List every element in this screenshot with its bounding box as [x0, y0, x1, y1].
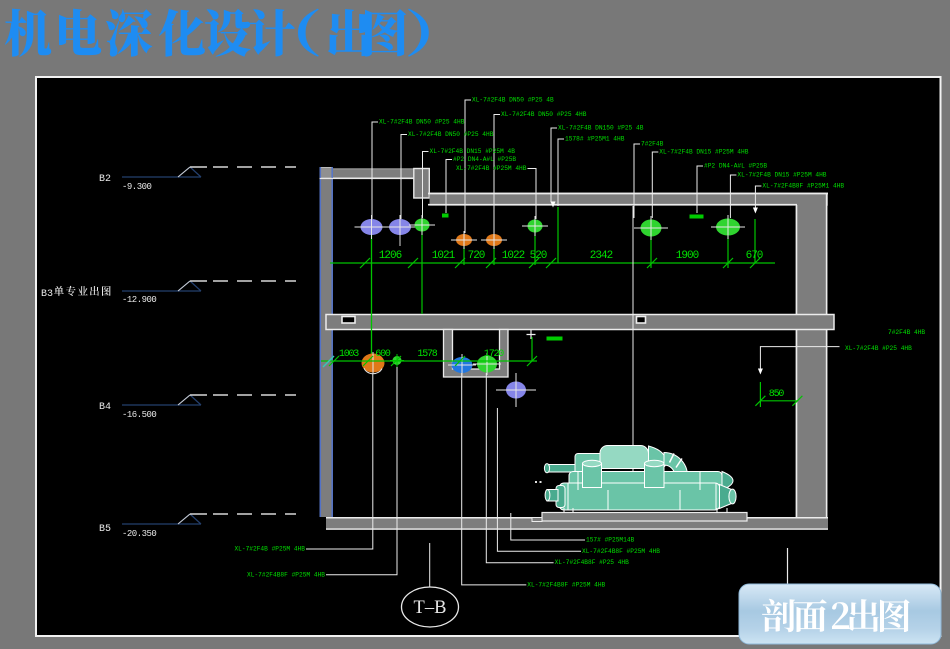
- svg-text:7#2F4B 4HB: 7#2F4B 4HB: [888, 329, 925, 336]
- svg-text:XL-7#2F4B DN15 #P25M 4HB: XL-7#2F4B DN15 #P25M 4HB: [659, 149, 748, 156]
- svg-text:1003: 1003: [339, 349, 359, 360]
- svg-text:-9.300: -9.300: [122, 182, 152, 192]
- svg-text:XL-7#2F4B DN50 #P25 4HB: XL-7#2F4B DN50 #P25 4HB: [408, 131, 494, 138]
- svg-text:2342: 2342: [590, 250, 613, 262]
- svg-text:XL-7#2F4B8F #P25M 4HB: XL-7#2F4B8F #P25M 4HB: [527, 581, 605, 588]
- svg-text:520: 520: [530, 250, 547, 262]
- svg-text:XL-7#2F4B DN50 #P25 4HB: XL-7#2F4B DN50 #P25 4HB: [501, 111, 587, 118]
- svg-text:XL-7#2F4B #P25 4HB: XL-7#2F4B #P25 4HB: [845, 345, 912, 352]
- svg-text:-12.900: -12.900: [122, 295, 156, 305]
- svg-text:B5: B5: [99, 524, 111, 535]
- svg-text:157# #P25M14B: 157# #P25M14B: [586, 537, 635, 544]
- svg-text:XL-7#2F4B8F #P25M1 4HB: XL-7#2F4B8F #P25M1 4HB: [762, 183, 844, 190]
- svg-text:B3: B3: [41, 289, 53, 300]
- svg-text:XL-7#2F4B8F #P25M 4HB: XL-7#2F4B8F #P25M 4HB: [247, 571, 325, 578]
- svg-text:1720: 1720: [484, 349, 504, 360]
- svg-text:#P2 DN4-A#L #P25B: #P2 DN4-A#L #P25B: [453, 156, 516, 163]
- svg-text:XL-7#2F4B8F #P25M 4HB: XL-7#2F4B8F #P25M 4HB: [582, 548, 660, 555]
- svg-text:T–B: T–B: [414, 598, 447, 618]
- svg-text:720: 720: [468, 250, 485, 262]
- svg-text:XL-7#2F4B DN50 #P25 4HB: XL-7#2F4B DN50 #P25 4HB: [379, 119, 465, 126]
- svg-text:600: 600: [375, 349, 391, 360]
- svg-text:850: 850: [769, 389, 785, 400]
- svg-text:#P2 DN4-A#L #P25B: #P2 DN4-A#L #P25B: [704, 163, 767, 170]
- svg-text:1022: 1022: [502, 250, 525, 262]
- svg-text:XL-7#2F4B #P25M 4HB: XL-7#2F4B #P25M 4HB: [456, 165, 527, 172]
- svg-text:XL-7#2F4B8F #P25 4HB: XL-7#2F4B8F #P25 4HB: [555, 559, 630, 566]
- svg-text:1578: 1578: [417, 349, 437, 360]
- svg-text:B4: B4: [99, 402, 111, 413]
- svg-text:XL-7#2F4B DN50 #P25 4B: XL-7#2F4B DN50 #P25 4B: [472, 97, 554, 104]
- svg-text:XL-7#2F4B #P25M 4HB: XL-7#2F4B #P25M 4HB: [234, 546, 305, 553]
- svg-text:XL-7#2F4B DN15 #P25M 4B: XL-7#2F4B DN15 #P25M 4B: [430, 148, 516, 155]
- svg-text:XL-7#2F4B DN15 #P25M 4HB: XL-7#2F4B DN15 #P25M 4HB: [737, 172, 826, 179]
- svg-text:-20.350: -20.350: [122, 529, 156, 539]
- svg-text:XL-7#2F4B DN150 #P25 4B: XL-7#2F4B DN150 #P25 4B: [558, 125, 644, 132]
- svg-text:1021: 1021: [432, 250, 456, 262]
- svg-text:7#2F4B: 7#2F4B: [641, 141, 664, 148]
- svg-text:670: 670: [746, 250, 763, 262]
- svg-text:1900: 1900: [676, 250, 699, 262]
- svg-text:-16.500: -16.500: [122, 410, 156, 420]
- svg-text:B2: B2: [99, 174, 111, 185]
- svg-text:1578# #P25M1 4HB: 1578# #P25M1 4HB: [565, 136, 625, 143]
- svg-text:1206: 1206: [379, 250, 402, 262]
